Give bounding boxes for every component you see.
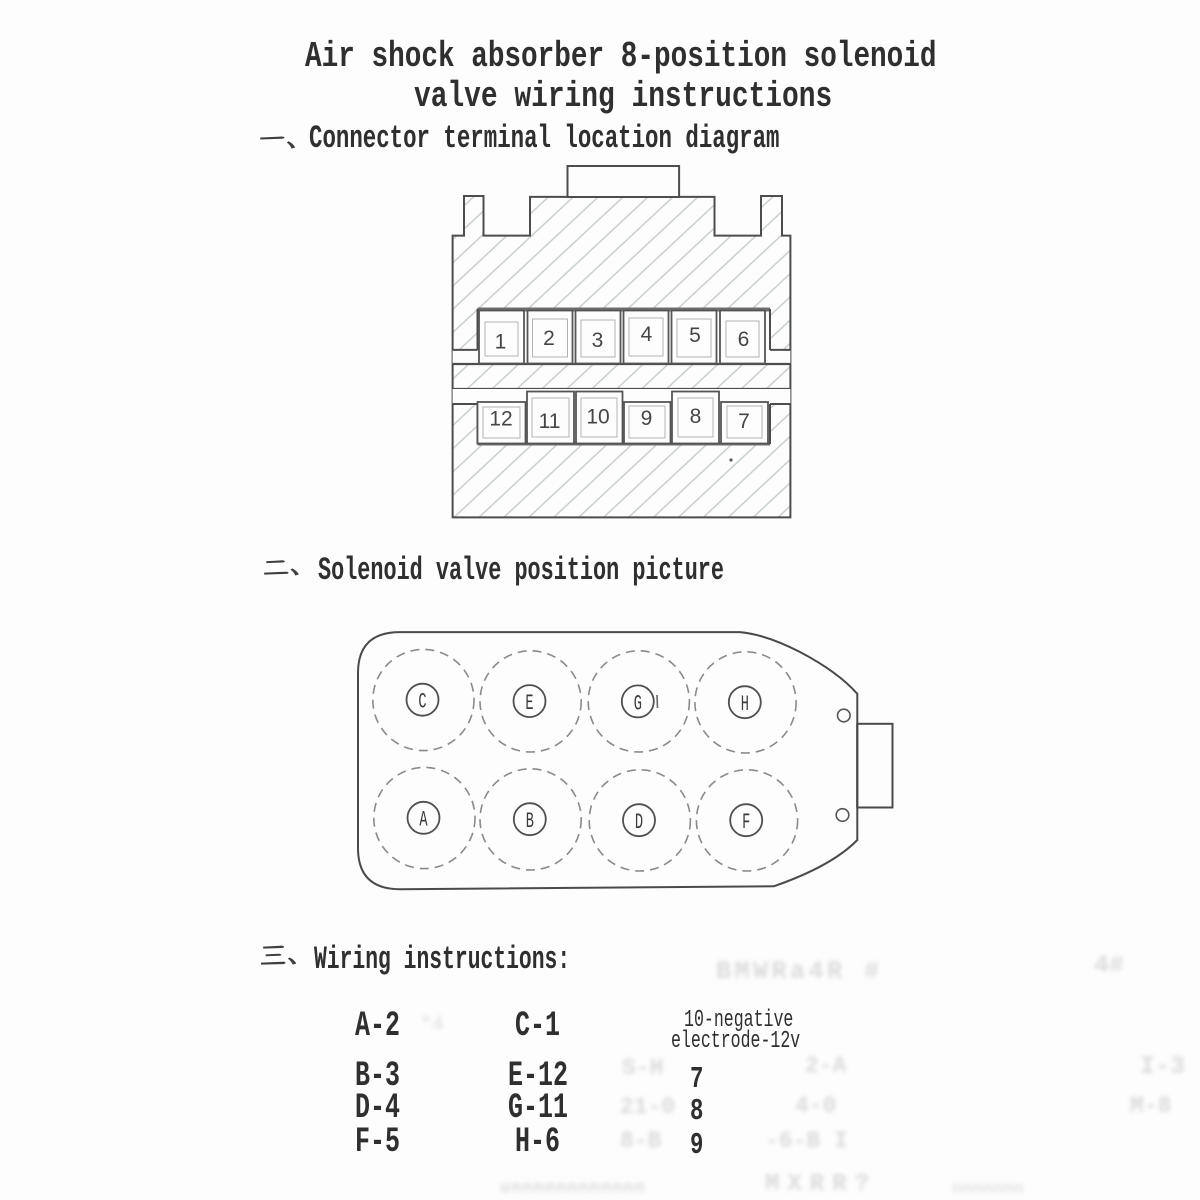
svg-text:A: A [419,809,427,833]
svg-text:7: 7 [738,410,750,433]
svg-text:3: 3 [592,329,604,352]
svg-text:4: 4 [641,323,653,346]
svg-text:C: C [418,691,426,715]
svg-text:B: B [526,810,534,834]
svg-text:1: 1 [495,331,507,354]
svg-text:8: 8 [690,405,702,428]
svg-text:10: 10 [586,406,609,429]
svg-text:9: 9 [641,407,653,430]
svg-text:F: F [742,811,750,835]
svg-text:6: 6 [738,328,750,351]
svg-text:D: D [635,811,643,835]
svg-text:E: E [525,692,533,716]
svg-text:2: 2 [543,327,555,350]
svg-text:H: H [741,693,749,717]
svg-text:12: 12 [489,408,512,431]
svg-text:G: G [634,692,642,716]
svg-text:11: 11 [539,410,561,433]
svg-text:5: 5 [689,324,701,347]
